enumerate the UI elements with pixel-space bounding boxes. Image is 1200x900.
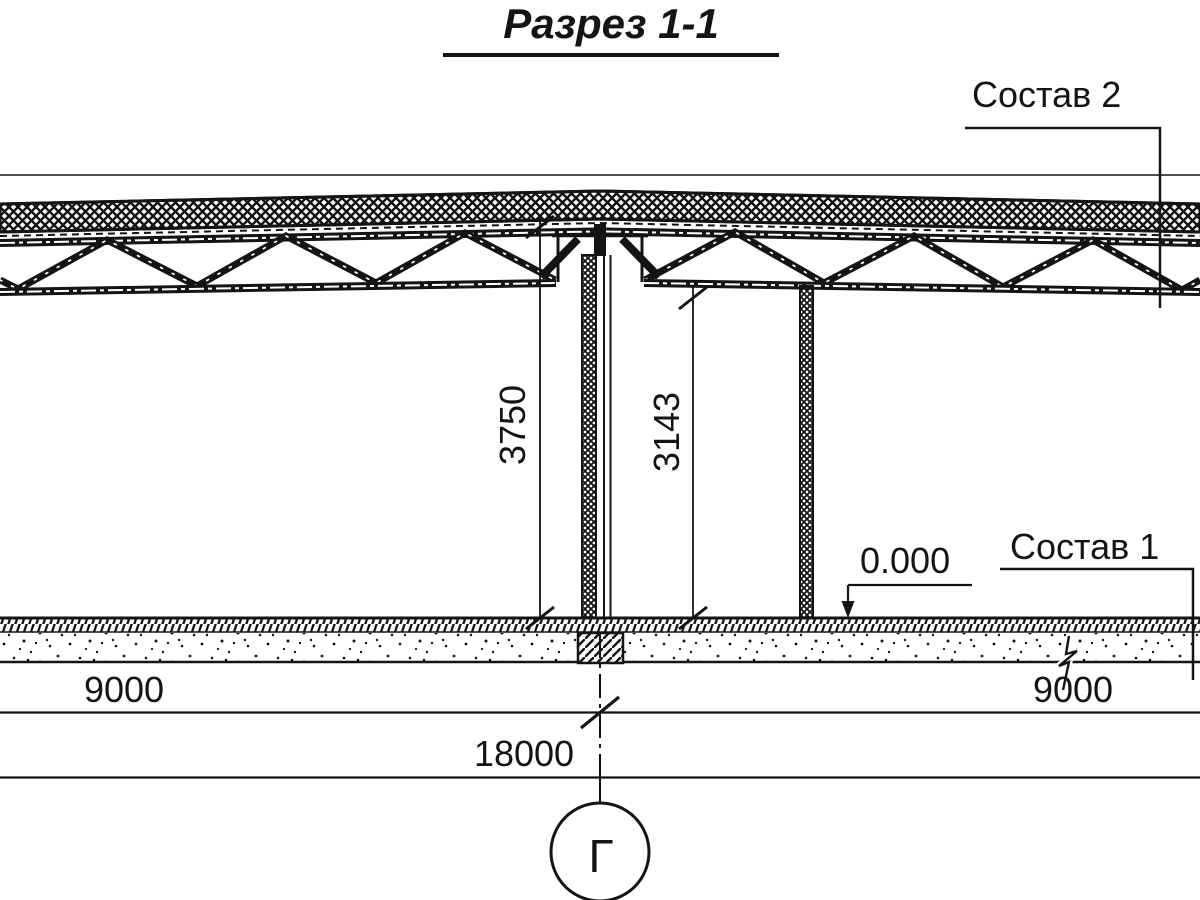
section-drawing-sheet: Разрез 1-1 Состав 2 Состав 1 0.000 3750 … xyxy=(0,0,1200,900)
dimension-3750-label: 3750 xyxy=(495,385,531,465)
grid-axis-letter: Г xyxy=(589,833,614,879)
drawing-title: Разрез 1-1 xyxy=(443,2,779,57)
floor-composition-label: Состав 1 xyxy=(1010,529,1159,565)
center-column xyxy=(582,255,611,618)
dimension-18000-label: 18000 xyxy=(474,736,574,772)
truss-right xyxy=(606,232,1200,293)
elevation-mark-label: 0.000 xyxy=(860,543,950,579)
dimension-9000-left-label: 9000 xyxy=(84,672,164,708)
section-linework xyxy=(0,0,1200,900)
dimension-9000-right-label: 9000 xyxy=(1033,672,1113,708)
dimension-3143-label: 3143 xyxy=(649,392,685,472)
partition-column xyxy=(800,286,813,618)
truss-left xyxy=(0,232,594,293)
roof-composition-label: Состав 2 xyxy=(972,77,1121,113)
elevation-leader xyxy=(842,585,973,618)
